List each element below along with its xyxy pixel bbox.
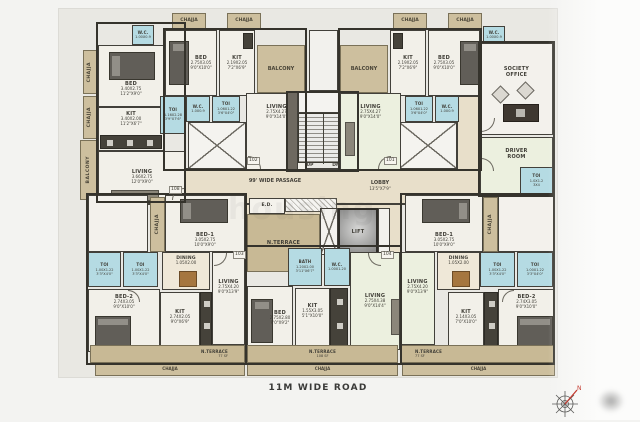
room-dim-ft: 11'2"X6'7" — [120, 122, 141, 127]
open-area-d — [88, 195, 148, 252]
kitchen-counter-icon — [243, 33, 253, 49]
room-dim-ft: 12'0"X9'0" — [131, 180, 152, 185]
dining-table-icon — [452, 271, 470, 287]
room-bed2-f: BED-2 2.74X3.05 9'0"X10'0" — [498, 289, 555, 352]
door-chip-103: 103 — [233, 251, 246, 259]
room-dim-ft: 9'0"X14'0" — [360, 115, 381, 120]
room-bath-e: BATH 1.20X2.00 3'11"X6'7" — [288, 248, 322, 286]
watermark: housing — [228, 192, 376, 227]
room-living-d: LIVING 2.75X4.20 9'0"X13'9" — [212, 252, 245, 345]
kitchen-counter-icon — [484, 292, 498, 348]
room-kit-c: KIT 2.19X2.05 7'2"X6'9" — [390, 30, 426, 96]
kitchen-counter-icon — [330, 288, 348, 348]
room-dim-ft: 3'9"X7'6" — [165, 117, 181, 121]
room-kit-e: KIT 1.55X3.05 5'1"X10'0" — [295, 288, 330, 348]
chajja-b1-label: CHAJJA — [180, 18, 197, 23]
room-dim-m: 1.0X0.9 — [440, 109, 454, 113]
passage-label: 99' WIDE PASSAGE — [222, 178, 328, 184]
room-bed-a: BED 3.40X2.75 11'2"X9'0" — [98, 45, 164, 107]
bed-icon — [169, 41, 189, 85]
door-chip-102: 102 — [247, 157, 260, 165]
balcony-b-label: BALCONY — [268, 66, 295, 72]
room-dim-ft: 9'0"X10'0" — [433, 66, 454, 71]
room-toi-b: TOI 1.06X1.22 3'6"X4'0" — [212, 96, 240, 122]
room-dim-ft: 3'3"X4'0" — [132, 272, 148, 276]
room-dim-ft: 9'0"X13'9" — [407, 290, 428, 295]
room-wc-a: W.C. 1.00X0.9 — [132, 25, 154, 45]
watermark-blob — [594, 386, 628, 416]
chajja-b2: CHAJJA — [227, 13, 261, 29]
room-dim-m: 1.0X0.9 — [191, 109, 205, 113]
stairwell-shaft — [309, 30, 338, 91]
chajja-f-bottom: CHAJJA — [402, 363, 555, 376]
room-wc-c-top: W.C. 1.00X0.9 — [483, 26, 505, 44]
room-living-f: LIVING 2.75X4.20 9'0"X13'9" — [400, 252, 435, 345]
room-kit-d: KIT 2.74X2.05 9'0"X6'9" — [160, 292, 200, 348]
chajja-e-bottom: CHAJJA — [247, 363, 398, 376]
room-dim-ft: 9'0"X10'0" — [113, 305, 134, 310]
room-dim-ft: 3'3"X4'0" — [527, 272, 543, 276]
door-chip-101: 101 — [384, 157, 397, 165]
lift-shaft-right — [378, 208, 390, 255]
kitchen-counter-icon — [200, 292, 212, 348]
chajja-f-bottom-label: CHAJJA — [471, 367, 486, 372]
room-dim-ft: 9'0"X10'0" — [190, 66, 211, 71]
chajja-a1: CHAJJA — [83, 50, 97, 94]
desk-icon — [503, 104, 539, 122]
room-dim-ft: 3'3"X4'0" — [96, 272, 112, 276]
chajja-c1: CHAJJA — [393, 13, 427, 29]
chajja-b2-label: CHAJJA — [235, 18, 252, 23]
room-dim-ft: 3'11"X6'7" — [296, 269, 315, 273]
chajja-f: CHAJJA — [483, 197, 498, 252]
office-name-line2: OFFICE — [506, 72, 527, 78]
room-dim-ft: 9'0"X14'4" — [364, 304, 385, 309]
bed-icon — [180, 199, 228, 223]
bed-icon — [422, 199, 470, 223]
sofa-icon — [345, 122, 355, 156]
chajja-c2: CHAJJA — [448, 13, 482, 29]
room-kit-f: KIT 2.14X3.05 7'0"X10'0" — [448, 292, 484, 348]
room-dining-f: DINING 1.05X2.00 — [437, 252, 480, 290]
kitchen-counter-icon — [393, 33, 403, 49]
room-kit-a: KIT 3.40X2.00 11'2"X6'7" — [98, 107, 164, 151]
stairs-up-label: UP — [300, 163, 320, 168]
room-dim-ft: 5'1"X10'0" — [302, 314, 323, 319]
room-wc-c: W.C. 1.0X0.9 — [435, 96, 459, 122]
room-wc-b: W.C. 1.0X0.9 — [186, 96, 210, 122]
room-toi-c: TOI 1.06X1.22 3'6"X4'0" — [405, 96, 433, 122]
open-area-f — [498, 195, 555, 252]
room-dim-ft: 9'0"X13'9" — [218, 290, 239, 295]
chajja-b1: CHAJJA — [172, 13, 206, 29]
chajja-d-bottom: CHAJJA — [95, 363, 245, 376]
room-dim-m: 1.00X0.9 — [486, 35, 502, 39]
terrace-d: N.TERRACE 77 SF — [90, 345, 245, 363]
room-dim-ft: 7'2"X6'9" — [399, 66, 418, 71]
room-dim-ft: 3X4 — [533, 183, 540, 187]
room-dim-ft: 9'0"X14'0" — [266, 115, 287, 120]
room-bed-c: BED 2.75X3.05 9'0"X10'0" — [428, 30, 480, 96]
room-kit-b: KIT 2.19X2.05 7'2"X6'9" — [219, 30, 255, 96]
room-bed1-f: BED-1 3.05X2.75 10'0"X9'0" — [405, 195, 483, 252]
room-dim-ft: 9'0"X9'2" — [271, 321, 290, 326]
stairs-dn-label: DN — [326, 163, 346, 168]
society-office: SOCIETY OFFICE — [480, 43, 553, 135]
kitchen-counter-icon — [100, 135, 162, 149]
room-dim-ft: 9'0"X6'9" — [171, 320, 190, 325]
chajja-f-label: CHAJJA — [488, 214, 493, 234]
bed-icon — [109, 52, 155, 80]
dining-table-icon — [179, 271, 197, 287]
chair-icon — [491, 85, 509, 103]
compass-north-label: N — [577, 385, 582, 392]
passage-right-arm — [457, 96, 480, 170]
room-toi1-d: TOI 1.00X1.22 3'3"X4'0" — [88, 252, 121, 287]
room-toi2-d: TOI 1.00X1.22 3'3"X4'0" — [123, 252, 158, 287]
road-label: 11M WIDE ROAD — [228, 383, 408, 393]
duct-b — [188, 122, 246, 169]
chajja-a2-label: CHAJJA — [87, 107, 92, 127]
center-terrace-label: N.TERRACE — [267, 240, 300, 246]
terrace-area: 108 SF — [316, 354, 328, 358]
room-dim-ft: 3'6"X4'0" — [218, 111, 234, 115]
balcony-b: BALCONY — [257, 45, 305, 93]
sofa-icon — [391, 299, 400, 335]
chajja-d-label: CHAJJA — [155, 214, 160, 234]
chajja-c1-label: CHAJJA — [401, 18, 418, 23]
driver-name-line2: ROOM — [507, 154, 525, 160]
room-dim-ft: 3'3"X4'0" — [489, 272, 505, 276]
bed-icon — [460, 41, 480, 85]
room-dim-m: 1.05X2.00 — [448, 261, 469, 266]
stair-pillar-left — [286, 91, 298, 172]
balcony-a-label: BALCONY — [86, 156, 91, 183]
room-bed2-d: BED-2 2.74X3.05 9'0"X10'0" — [88, 289, 160, 352]
balcony-c-label: BALCONY — [351, 66, 378, 72]
chajja-c2-label: CHAJJA — [456, 18, 473, 23]
door-chip-104: 104 — [381, 251, 394, 259]
lobby-dim: 13'5"X7'9" — [352, 186, 408, 191]
balcony-c: BALCONY — [340, 45, 388, 93]
door-chip-108: 108 — [169, 186, 182, 194]
chajja-d-bottom-label: CHAJJA — [162, 367, 177, 372]
room-dim-m: 1.05X2.00 — [176, 261, 197, 266]
chajja-d: CHAJJA — [150, 197, 165, 252]
room-dim-ft: 7'2"X6'9" — [228, 66, 247, 71]
right-fade-overlay — [548, 0, 640, 420]
floorplan-canvas: 99' WIDE PASSAGE LOBBY 13'5"X7'9" BALCON… — [0, 0, 640, 420]
chajja-e-bottom-label: CHAJJA — [315, 367, 330, 372]
room-dim-ft: 7'0"X10'0" — [455, 320, 476, 325]
room-dining-d: DINING 1.05X2.00 — [162, 252, 210, 290]
lift-label: LIFT — [352, 229, 365, 235]
room-dim-ft: 10'0"X9'0" — [433, 243, 454, 248]
room-dim-m: 1.00X1.20 — [328, 267, 346, 271]
room-dim-ft: 3'6"X4'0" — [411, 111, 427, 115]
compass-icon: N — [546, 382, 586, 422]
room-wc-e: W.C. 1.00X1.20 — [324, 248, 350, 286]
room-toi2-f: TOI 1.00X1.22 3'3"X4'0" — [517, 252, 553, 287]
room-toi1-f: TOI 1.00X1.22 3'3"X4'0" — [480, 252, 515, 287]
room-bed-b: BED 2.75X3.05 9'0"X10'0" — [165, 30, 217, 96]
chajja-a2: CHAJJA — [83, 96, 97, 139]
room-dim-ft: 10'0"X9'0" — [194, 243, 215, 248]
room-toi-driver: TOI 1.0X1.2 3X4 — [520, 167, 553, 195]
room-toi-a: TOI 1.16X2.28 3'9"X7'6" — [160, 96, 186, 134]
room-bed-e: BED 2.75X2.80 9'0"X9'2" — [247, 286, 293, 350]
room-dim: 1.00X0.9 — [135, 35, 151, 39]
chajja-a1-label: CHAJJA — [87, 62, 92, 82]
chair-icon — [516, 81, 534, 99]
terrace-area: 77 SF — [415, 354, 425, 358]
room-dim-ft: 11'2"X9'0" — [120, 92, 141, 97]
terrace-f: N.TERRACE 77 SF — [400, 345, 555, 363]
lobby-label: LOBBY 13'5"X7'9" — [352, 180, 408, 191]
room-living-e: LIVING 2.75X4.38 9'0"X14'4" — [350, 252, 400, 350]
duct-c — [399, 122, 457, 169]
room-dim-ft: 9'0"X10'0" — [516, 305, 537, 310]
balcony-a: BALCONY — [80, 140, 97, 200]
terrace-area: 77 SF — [218, 354, 228, 358]
terrace-e: N.TERRACE 108 SF — [247, 345, 398, 363]
